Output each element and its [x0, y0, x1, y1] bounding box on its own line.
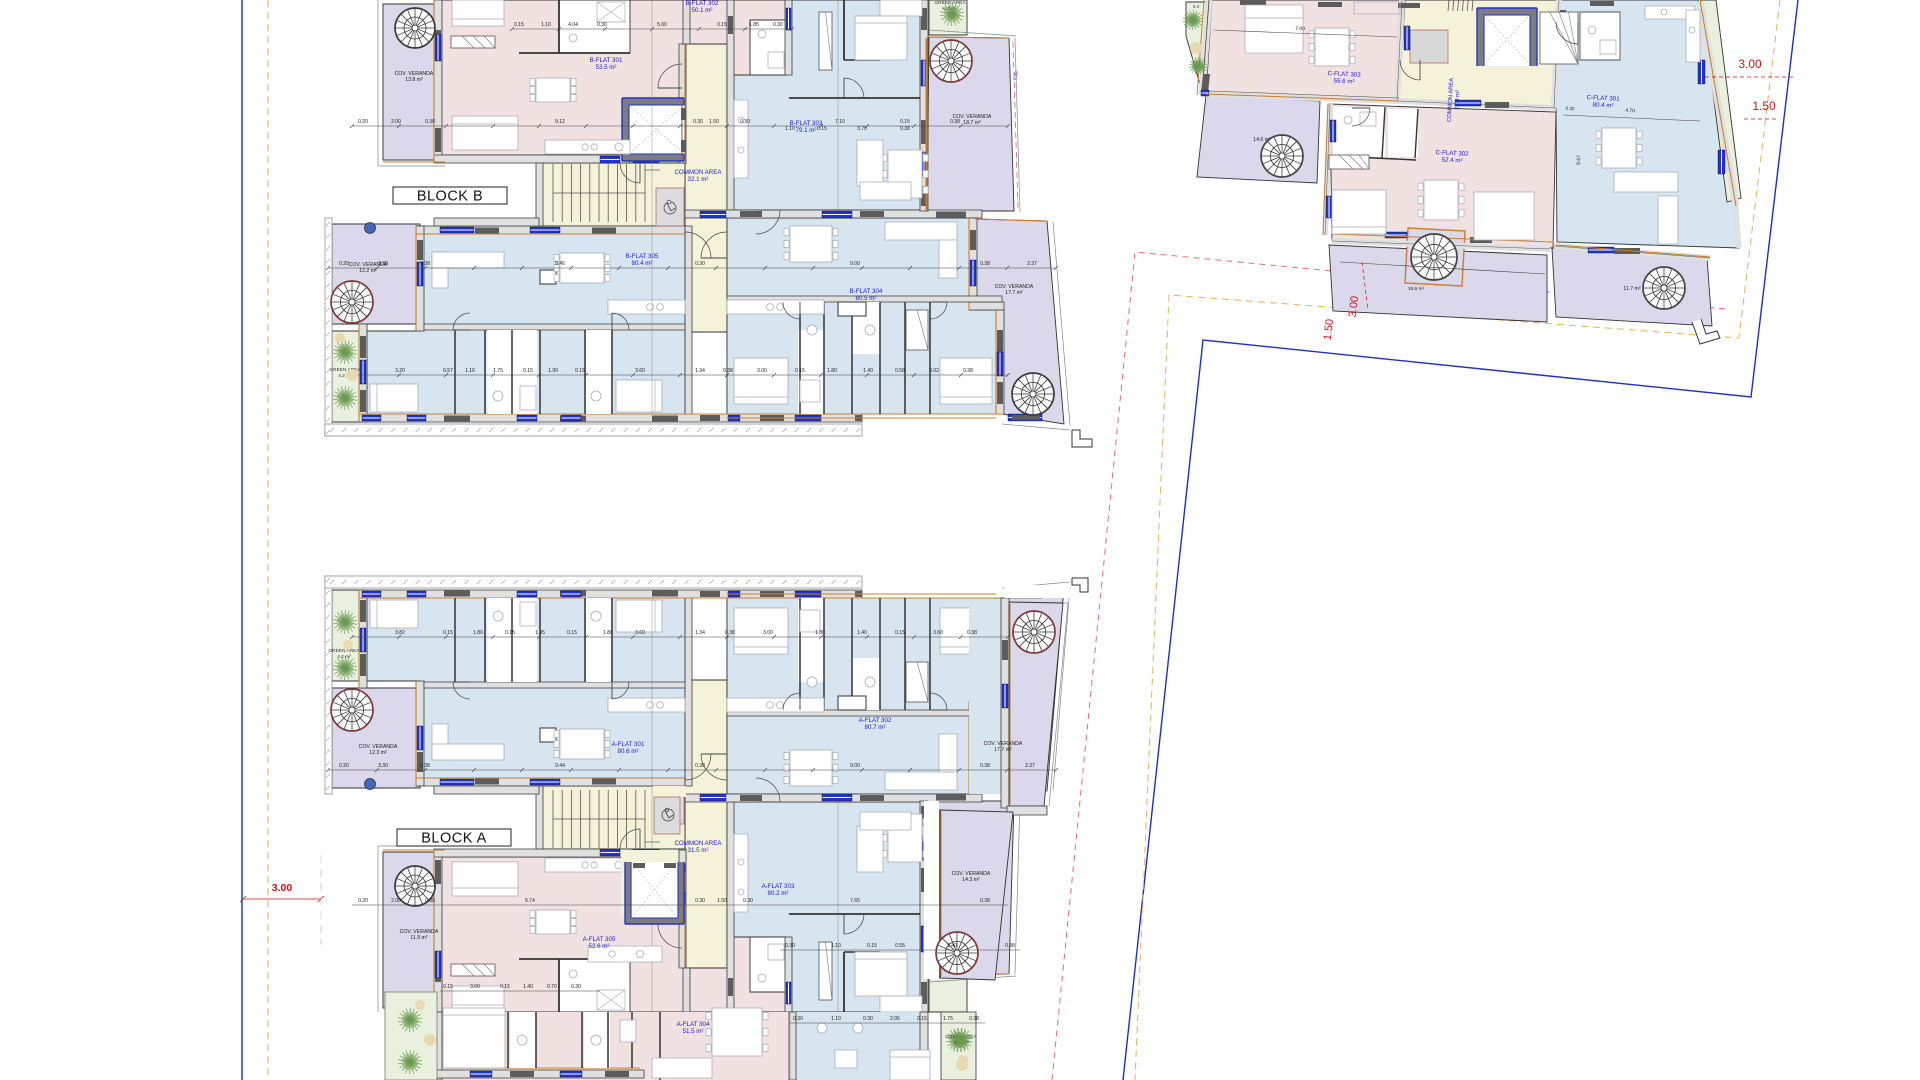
svg-text:3.60: 3.60 [933, 630, 943, 636]
svg-text:0.15: 0.15 [900, 119, 910, 125]
svg-text:0.38: 0.38 [420, 763, 430, 769]
svg-text:3.60: 3.60 [635, 368, 645, 374]
svg-text:1.80: 1.80 [473, 630, 483, 636]
svg-text:1.90: 1.90 [548, 368, 558, 374]
svg-text:5.4: 5.4 [1193, 4, 1200, 9]
svg-text:B-FLAT 301: B-FLAT 301 [590, 57, 623, 64]
svg-text:0.15: 0.15 [500, 984, 510, 990]
svg-text:0.30: 0.30 [793, 1016, 803, 1022]
svg-text:3.02: 3.02 [929, 368, 939, 374]
svg-text:1.95: 1.95 [535, 630, 545, 636]
svg-text:1.80: 1.80 [827, 368, 837, 374]
svg-text:2.37: 2.37 [1027, 261, 1037, 267]
svg-text:0.38: 0.38 [425, 119, 435, 125]
svg-text:55.6 m²: 55.6 m² [1333, 77, 1354, 85]
svg-text:32.1 m²: 32.1 m² [688, 176, 709, 183]
svg-text:18.7 m²: 18.7 m² [963, 120, 981, 126]
svg-text:1.10: 1.10 [831, 943, 841, 949]
svg-text:0.38: 0.38 [425, 898, 435, 904]
svg-text:0.30: 0.30 [743, 898, 753, 904]
svg-text:3.00: 3.00 [757, 368, 767, 374]
svg-text:A-FLAT 305: A-FLAT 305 [583, 936, 616, 943]
svg-text:9.00: 9.00 [850, 763, 860, 769]
svg-text:0.15: 0.15 [505, 630, 515, 636]
svg-text:0.15: 0.15 [917, 1016, 927, 1022]
svg-text:COMMON AREA: COMMON AREA [674, 169, 722, 176]
svg-text:0.15: 0.15 [817, 126, 827, 132]
svg-text:0.38: 0.38 [980, 898, 990, 904]
svg-text:17.7 m²: 17.7 m² [1005, 290, 1023, 296]
svg-text:4.70: 4.70 [1625, 108, 1635, 115]
svg-text:1.75: 1.75 [493, 368, 503, 374]
svg-text:A-FLAT 301: A-FLAT 301 [612, 741, 645, 748]
svg-text:3.40: 3.40 [947, 943, 957, 949]
svg-text:0.38: 0.38 [967, 630, 977, 636]
svg-text:0.70: 0.70 [547, 984, 557, 990]
svg-text:0.20: 0.20 [339, 261, 349, 267]
svg-text:0.15: 0.15 [514, 22, 524, 28]
svg-text:1.40: 1.40 [857, 630, 867, 636]
svg-text:1.16: 1.16 [465, 368, 475, 374]
svg-text:9.00: 9.00 [850, 261, 860, 267]
svg-text:12.3 m²: 12.3 m² [369, 750, 387, 756]
svg-text:14.3 m²: 14.3 m² [962, 877, 980, 883]
svg-text:1.10: 1.10 [541, 22, 551, 28]
svg-text:1.80: 1.80 [603, 630, 613, 636]
svg-text:0.38: 0.38 [900, 126, 910, 132]
svg-text:0.15: 0.15 [567, 630, 577, 636]
svg-text:0.38: 0.38 [950, 119, 960, 125]
svg-text:0.38: 0.38 [963, 368, 973, 374]
svg-text:4.04: 4.04 [568, 22, 578, 28]
svg-text:1.40: 1.40 [863, 368, 873, 374]
svg-text:5.74: 5.74 [525, 898, 535, 904]
svg-text:B-FLAT 304: B-FLAT 304 [850, 288, 883, 295]
svg-text:0.20: 0.20 [339, 763, 349, 769]
svg-text:0.15: 0.15 [895, 630, 905, 636]
svg-text:3.00: 3.00 [763, 630, 773, 636]
svg-text:0.30: 0.30 [695, 898, 705, 904]
svg-text:80.6 m²: 80.6 m² [618, 748, 639, 755]
svg-text:BLOCK A: BLOCK A [421, 831, 487, 847]
svg-text:A-FLAT 302: A-FLAT 302 [859, 717, 892, 724]
svg-text:12.2 m²: 12.2 m² [359, 268, 377, 274]
svg-text:79.1 m²: 79.1 m² [796, 127, 817, 134]
svg-text:1.10: 1.10 [831, 1016, 841, 1022]
svg-text:0.15: 0.15 [523, 368, 533, 374]
svg-text:1.80: 1.80 [815, 630, 825, 636]
svg-text:0.15: 0.15 [795, 368, 805, 374]
svg-text:0.58: 0.58 [895, 368, 905, 374]
svg-text:52.6 m²: 52.6 m² [589, 943, 610, 950]
svg-text:0.30: 0.30 [695, 261, 705, 267]
svg-text:52.4 m²: 52.4 m² [1441, 156, 1462, 164]
svg-text:3.00: 3.00 [272, 882, 293, 894]
svg-text:51.5 m²: 51.5 m² [683, 1028, 704, 1035]
svg-text:B-FLAT 305: B-FLAT 305 [626, 253, 659, 260]
svg-text:1.50: 1.50 [709, 119, 719, 125]
svg-text:14.6 m²: 14.6 m² [1253, 137, 1271, 143]
svg-text:80.7 m²: 80.7 m² [865, 724, 886, 731]
svg-text:0.38: 0.38 [725, 630, 735, 636]
svg-text:80.4 m²: 80.4 m² [1592, 101, 1613, 109]
svg-text:13.8 m²: 13.8 m² [405, 77, 423, 83]
svg-text:80.5 m²: 80.5 m² [856, 295, 877, 302]
svg-text:1.85: 1.85 [749, 22, 759, 28]
svg-text:0.30: 0.30 [773, 22, 783, 28]
svg-text:53.5 m²: 53.5 m² [596, 64, 617, 71]
svg-text:0.30: 0.30 [863, 1016, 873, 1022]
svg-text:9.12: 9.12 [555, 119, 565, 125]
svg-text:3.30: 3.30 [378, 763, 388, 769]
svg-text:0.15: 0.15 [717, 22, 727, 28]
svg-text:19.6 m²: 19.6 m² [1408, 286, 1425, 292]
svg-text:0.15: 0.15 [867, 943, 877, 949]
svg-text:0.20: 0.20 [358, 898, 368, 904]
svg-text:0.30: 0.30 [740, 119, 750, 125]
svg-text:0.38: 0.38 [980, 261, 990, 267]
svg-text:9.46: 9.46 [555, 261, 565, 267]
svg-text:3.20: 3.20 [395, 368, 405, 374]
svg-text:3.00: 3.00 [1738, 57, 1762, 71]
svg-text:7.10: 7.10 [835, 119, 845, 125]
svg-text:3.82: 3.82 [395, 630, 405, 636]
svg-text:1.75: 1.75 [943, 1016, 953, 1022]
svg-text:1.34: 1.34 [695, 368, 705, 374]
svg-text:50.1 m²: 50.1 m² [692, 7, 713, 14]
svg-text:0.55: 0.55 [895, 943, 905, 949]
svg-text:3.70: 3.70 [857, 126, 867, 132]
svg-text:A-FLAT 303: A-FLAT 303 [762, 883, 795, 890]
svg-text:0.30: 0.30 [693, 119, 703, 125]
svg-text:0.20: 0.20 [358, 119, 368, 125]
svg-text:1.50: 1.50 [717, 898, 727, 904]
svg-text:1.10: 1.10 [785, 126, 795, 132]
svg-text:0.38: 0.38 [420, 261, 430, 267]
svg-text:80.4 m²: 80.4 m² [632, 260, 653, 267]
svg-text:2.37: 2.37 [1025, 763, 1035, 769]
svg-text:0.15: 0.15 [443, 630, 453, 636]
svg-text:0.38: 0.38 [969, 1016, 979, 1022]
svg-text:GREEN AREA: GREEN AREA [934, 0, 966, 6]
svg-text:0.30: 0.30 [785, 943, 795, 949]
svg-text:COMMON AREA: COMMON AREA [674, 840, 722, 847]
svg-text:B-FLAT 302: B-FLAT 302 [686, 0, 719, 7]
svg-text:31.5 m²: 31.5 m² [688, 847, 709, 854]
svg-text:2.00: 2.00 [391, 898, 401, 904]
svg-text:GREEN AREA: GREEN AREA [328, 648, 360, 654]
svg-text:A-FLAT 304: A-FLAT 304 [677, 1021, 710, 1028]
svg-text:9.44: 9.44 [555, 763, 565, 769]
svg-text:24.9 m²: 24.9 m² [1454, 90, 1461, 110]
svg-text:0.38: 0.38 [1005, 943, 1015, 949]
svg-text:0.38: 0.38 [723, 368, 733, 374]
svg-text:0.30: 0.30 [597, 22, 607, 28]
svg-text:0.30: 0.30 [695, 763, 705, 769]
svg-text:BLOCK B: BLOCK B [417, 189, 483, 205]
svg-text:5.00: 5.00 [657, 22, 667, 28]
svg-text:0.30: 0.30 [571, 984, 581, 990]
svg-text:11.9 m²: 11.9 m² [410, 935, 427, 941]
svg-text:0.38: 0.38 [980, 763, 990, 769]
svg-text:0.15: 0.15 [575, 368, 585, 374]
svg-text:2.00: 2.00 [391, 119, 401, 125]
svg-text:17.7 m²: 17.7 m² [994, 747, 1012, 753]
svg-text:3.30: 3.30 [378, 261, 388, 267]
svg-text:11.7 m²: 11.7 m² [1623, 286, 1640, 292]
svg-text:0.57: 0.57 [443, 368, 453, 374]
svg-text:1.40: 1.40 [523, 984, 533, 990]
svg-text:7.00: 7.00 [1295, 26, 1305, 33]
svg-text:7.65: 7.65 [850, 898, 860, 904]
svg-text:1.50: 1.50 [1752, 99, 1776, 113]
svg-text:3.00: 3.00 [470, 984, 480, 990]
svg-text:2.05: 2.05 [890, 1016, 900, 1022]
svg-text:3.60: 3.60 [635, 630, 645, 636]
svg-text:0.32: 0.32 [1565, 106, 1575, 111]
svg-text:80.2 m²: 80.2 m² [768, 890, 789, 897]
svg-text:1.34: 1.34 [695, 630, 705, 636]
svg-text:0.15: 0.15 [443, 984, 453, 990]
svg-text:6.67: 6.67 [1576, 155, 1583, 165]
